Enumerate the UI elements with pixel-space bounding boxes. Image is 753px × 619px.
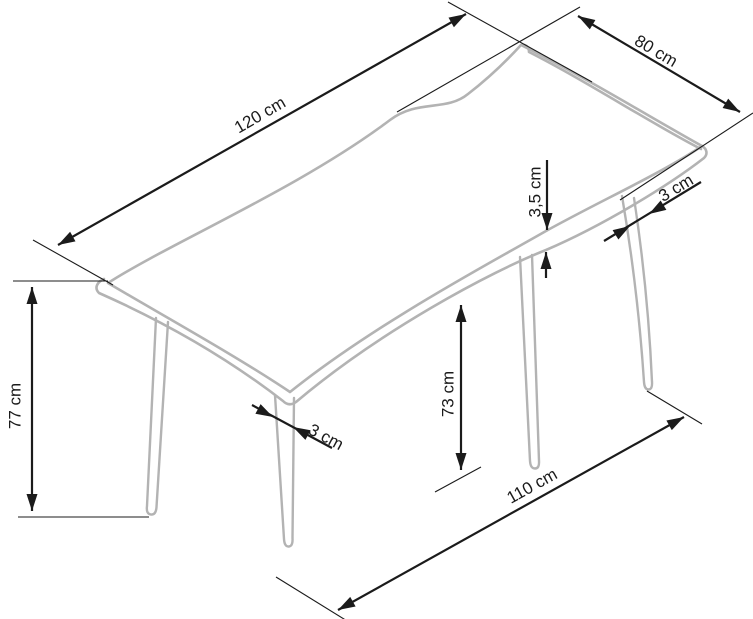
arrowhead — [27, 287, 38, 304]
tick-underside-floor — [435, 467, 481, 492]
dimension-lines — [27, 14, 741, 610]
dim-label-top-thickness: 3,5 cm — [526, 166, 545, 217]
arrowhead — [541, 252, 552, 269]
arrowhead — [666, 417, 684, 430]
leg-back-left — [147, 318, 168, 515]
dim-label-front-leg-diameter: 3 cm — [305, 420, 346, 454]
dimension-labels: 120 cm 80 cm 77 cm 73 cm 3,5 cm 3 cm 3 c… — [6, 31, 697, 507]
arrowhead — [456, 305, 467, 322]
extension-line-floor-left — [276, 577, 352, 619]
extension-lines — [13, 2, 753, 619]
dimension-line-top-length — [58, 14, 466, 245]
arrowhead — [449, 14, 467, 27]
arrowhead — [456, 453, 467, 470]
dim-label-underside-height: 73 cm — [439, 371, 458, 417]
dimension-line-floor-span — [338, 417, 684, 610]
dim-label-top-depth: 80 cm — [631, 31, 681, 71]
dimension-diagram: 120 cm 80 cm 77 cm 73 cm 3,5 cm 3 cm 3 c… — [0, 0, 753, 619]
leg-back-center — [520, 255, 539, 469]
dim-label-back-leg-diameter: 3 cm — [655, 170, 696, 205]
arrowhead — [27, 494, 38, 511]
arrowhead — [338, 597, 356, 610]
arrowhead — [723, 99, 740, 112]
tabletop-edge-bottom — [97, 146, 707, 404]
extension-line-left-corner — [33, 240, 113, 285]
dim-label-height: 77 cm — [6, 383, 25, 429]
table-outline — [97, 45, 707, 547]
arrowhead — [58, 232, 76, 245]
leg-back-right — [622, 196, 652, 390]
dimension-line-top-depth — [578, 16, 740, 112]
arrowhead — [255, 404, 273, 417]
tabletop-top-face — [108, 45, 702, 392]
arrowhead — [578, 16, 595, 29]
table-dimension-drawing: 120 cm 80 cm 77 cm 73 cm 3,5 cm 3 cm 3 c… — [0, 0, 753, 619]
